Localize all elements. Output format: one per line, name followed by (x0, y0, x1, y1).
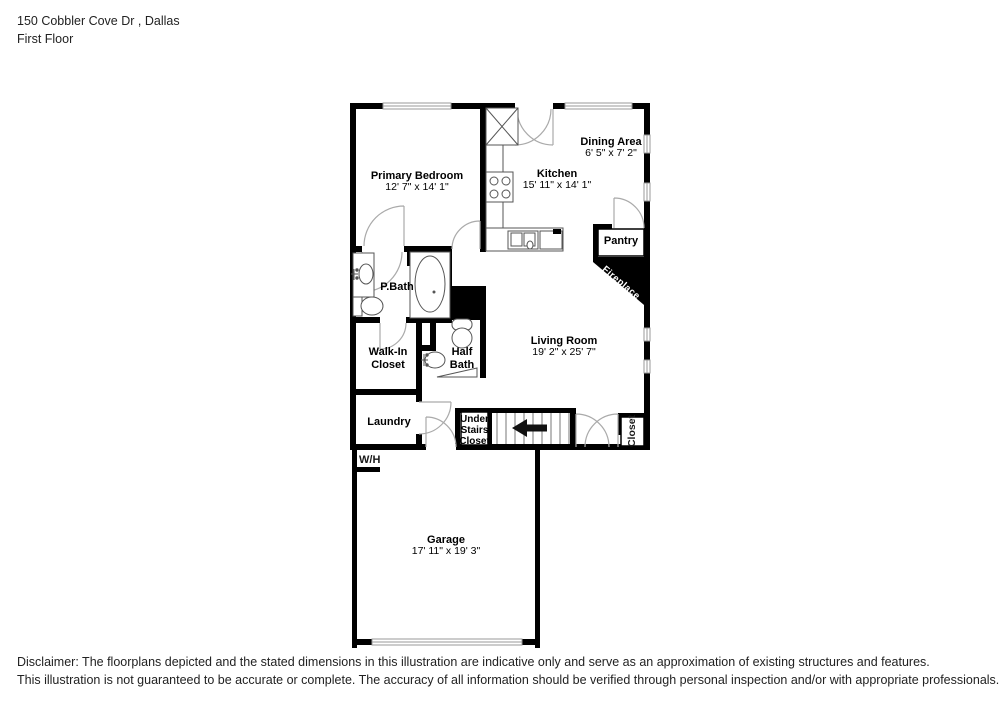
dims-living-room: 19' 2" x 25' 7" (532, 346, 595, 358)
label-p-bath: P.Bath (380, 281, 413, 294)
garage-door (372, 639, 522, 645)
label-water-heater: W/H (359, 454, 380, 466)
label-laundry: Laundry (367, 416, 410, 429)
disclaimer-line-2: This illustration is not guaranteed to b… (17, 673, 999, 687)
floor-plan-drawing (0, 0, 1000, 707)
dims-kitchen: 15' 11" x 14' 1" (523, 179, 591, 191)
stove (486, 172, 513, 202)
floor-plan: Primary Bedroom 12' 7" x 14' 1" Kitchen … (0, 0, 1000, 707)
dims-primary-bedroom: 12' 7" x 14' 1" (385, 181, 448, 193)
label-closet: Closet (626, 415, 638, 447)
stairs (497, 413, 569, 444)
label-under-stairs-closet: Under Stairs Closet (455, 414, 495, 447)
label-pantry: Pantry (604, 235, 638, 248)
disclaimer-line-1: Disclaimer: The floorplans depicted and … (17, 655, 930, 669)
label-walk-in-closet: Walk-In Closet (357, 346, 419, 372)
pbath-sink (359, 264, 373, 284)
dims-dining-area: 6' 5" x 7' 2" (585, 147, 637, 159)
dims-garage: 17' 11" x 19' 3" (412, 545, 480, 557)
label-half-bath: Half Bath (442, 346, 482, 372)
floorplan-page: 150 Cobbler Cove Dr , Dallas First Floor (0, 0, 1000, 707)
pbath-toilet (361, 297, 383, 315)
kitchen-door-opening (515, 103, 553, 109)
halfbath-toilet (452, 328, 472, 348)
